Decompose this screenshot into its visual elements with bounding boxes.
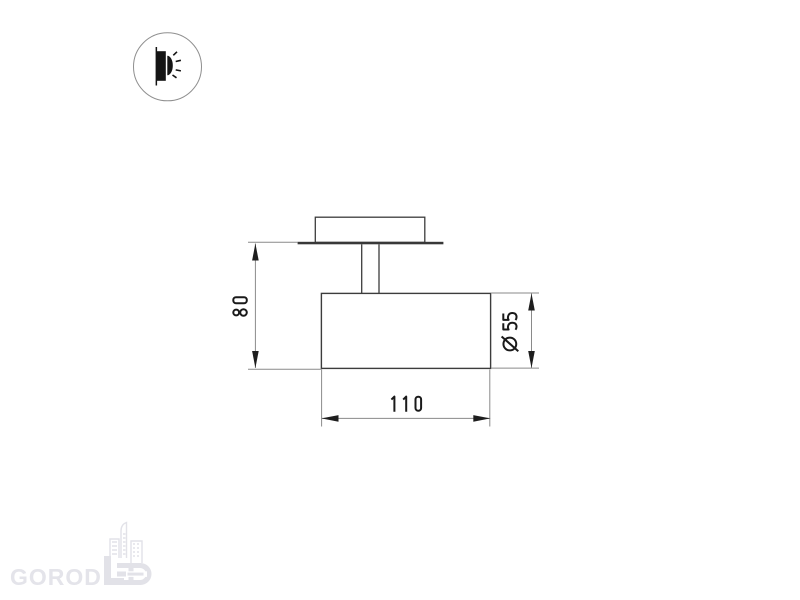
svg-text:GOROD: GOROD	[10, 564, 102, 590]
